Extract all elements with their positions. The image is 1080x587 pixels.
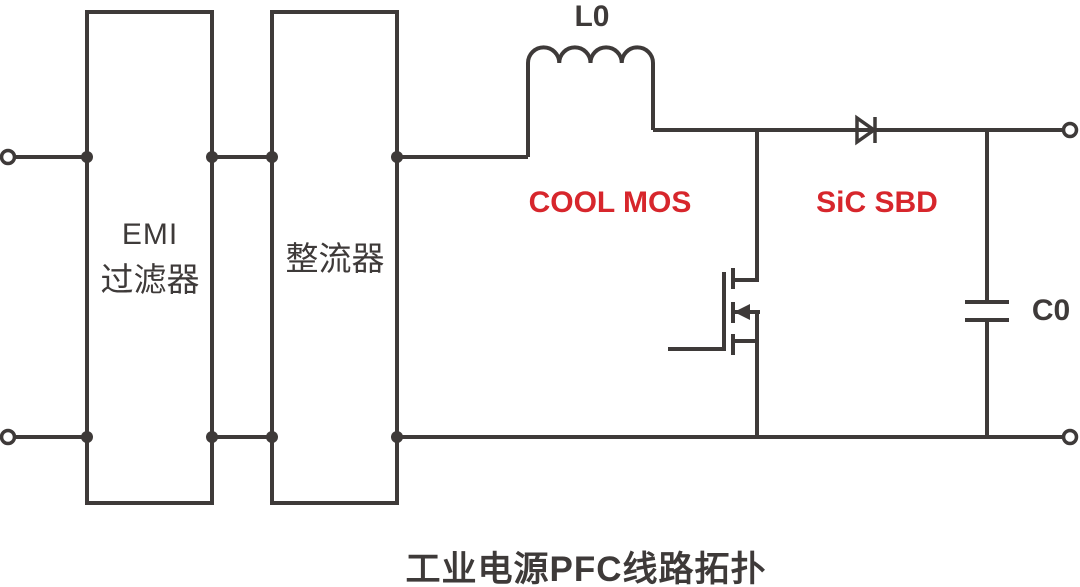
pfc-topology-diagram: EMI 过滤器 整流器 L0 SiC SBD [0,0,1080,587]
rectifier-label: 整流器 [286,240,385,277]
input-terminal-top [2,151,15,164]
junction-dot [206,151,218,163]
capacitor-symbol: C0 [965,130,1070,437]
input-terminal-bottom [2,431,15,444]
output-terminal-top [1064,124,1077,137]
emi-filter-block: EMI 过滤器 [87,12,212,503]
mosfet-symbol: COOL MOS [529,130,760,437]
emi-filter-box [87,12,212,503]
diode-symbol: SiC SBD [816,117,938,219]
diagram-title: 工业电源PFC线路拓扑 [405,550,766,587]
junction-dot [81,151,93,163]
emi-filter-label-line2: 过滤器 [101,261,200,298]
junction-dot [266,431,278,443]
inductor-label: L0 [574,0,609,33]
mosfet-body-arrowhead [734,304,750,320]
inductor-symbol: L0 [528,0,653,157]
circuit-schematic: EMI 过滤器 整流器 L0 SiC SBD [0,0,1080,587]
mosfet-label: COOL MOS [529,186,692,219]
diode-label: SiC SBD [816,186,938,219]
emi-filter-label-line1: EMI [122,218,178,251]
junction-dot [206,431,218,443]
junction-dot [391,431,403,443]
rectifier-block: 整流器 [272,12,397,503]
inductor-coil [528,47,653,157]
junction-dot [266,151,278,163]
junction-dot [81,431,93,443]
capacitor-label: C0 [1032,294,1070,327]
mosfet-drain-lead [733,130,757,280]
junction-dot [391,151,403,163]
output-terminal-bottom [1064,431,1077,444]
